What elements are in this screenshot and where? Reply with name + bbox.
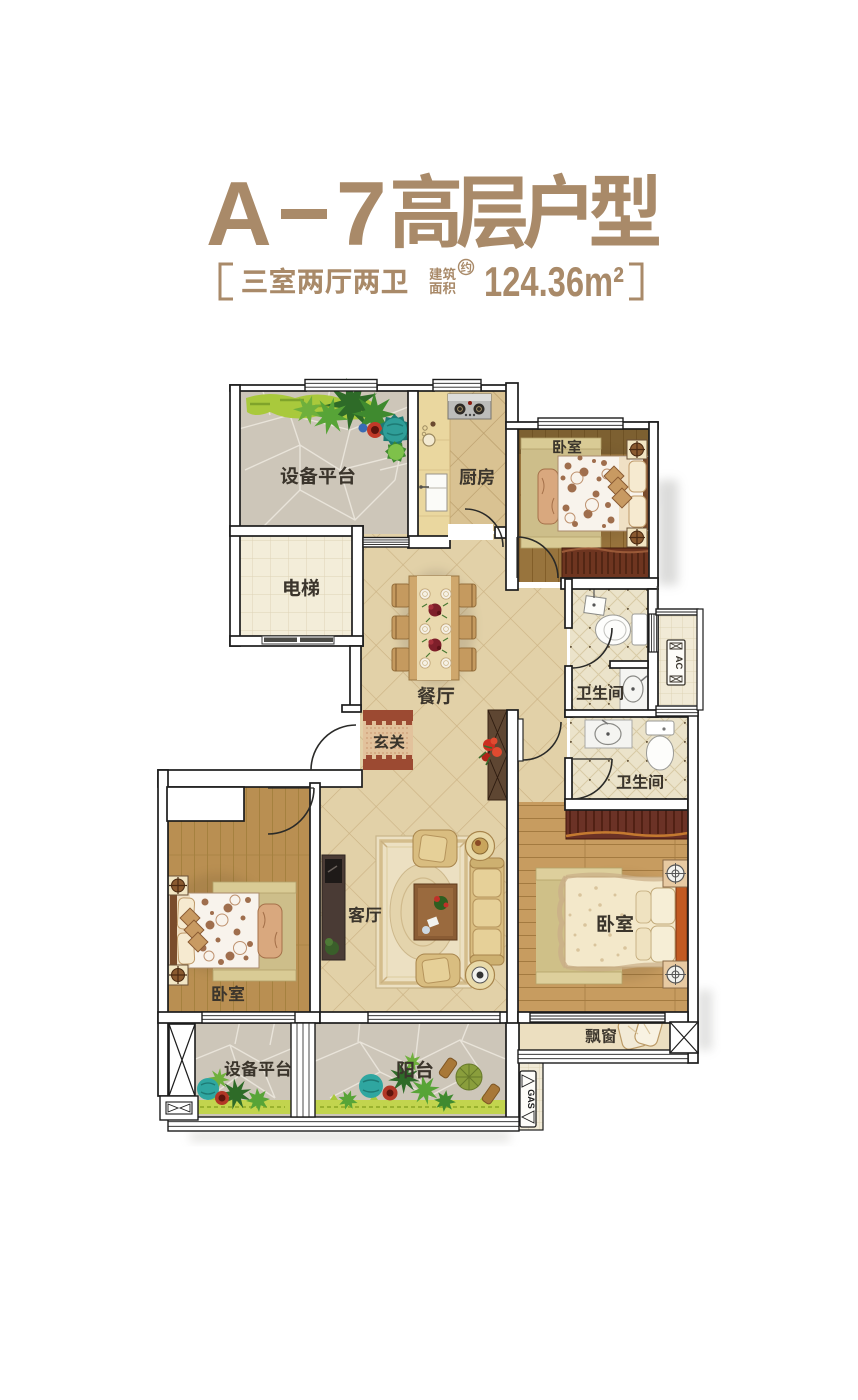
svg-text:AC: AC	[673, 656, 684, 670]
svg-text:GAS: GAS	[526, 1089, 536, 1109]
svg-text:7: 7	[336, 164, 387, 265]
svg-text:124.36m²: 124.36m²	[484, 258, 624, 305]
svg-text:A: A	[206, 164, 272, 265]
